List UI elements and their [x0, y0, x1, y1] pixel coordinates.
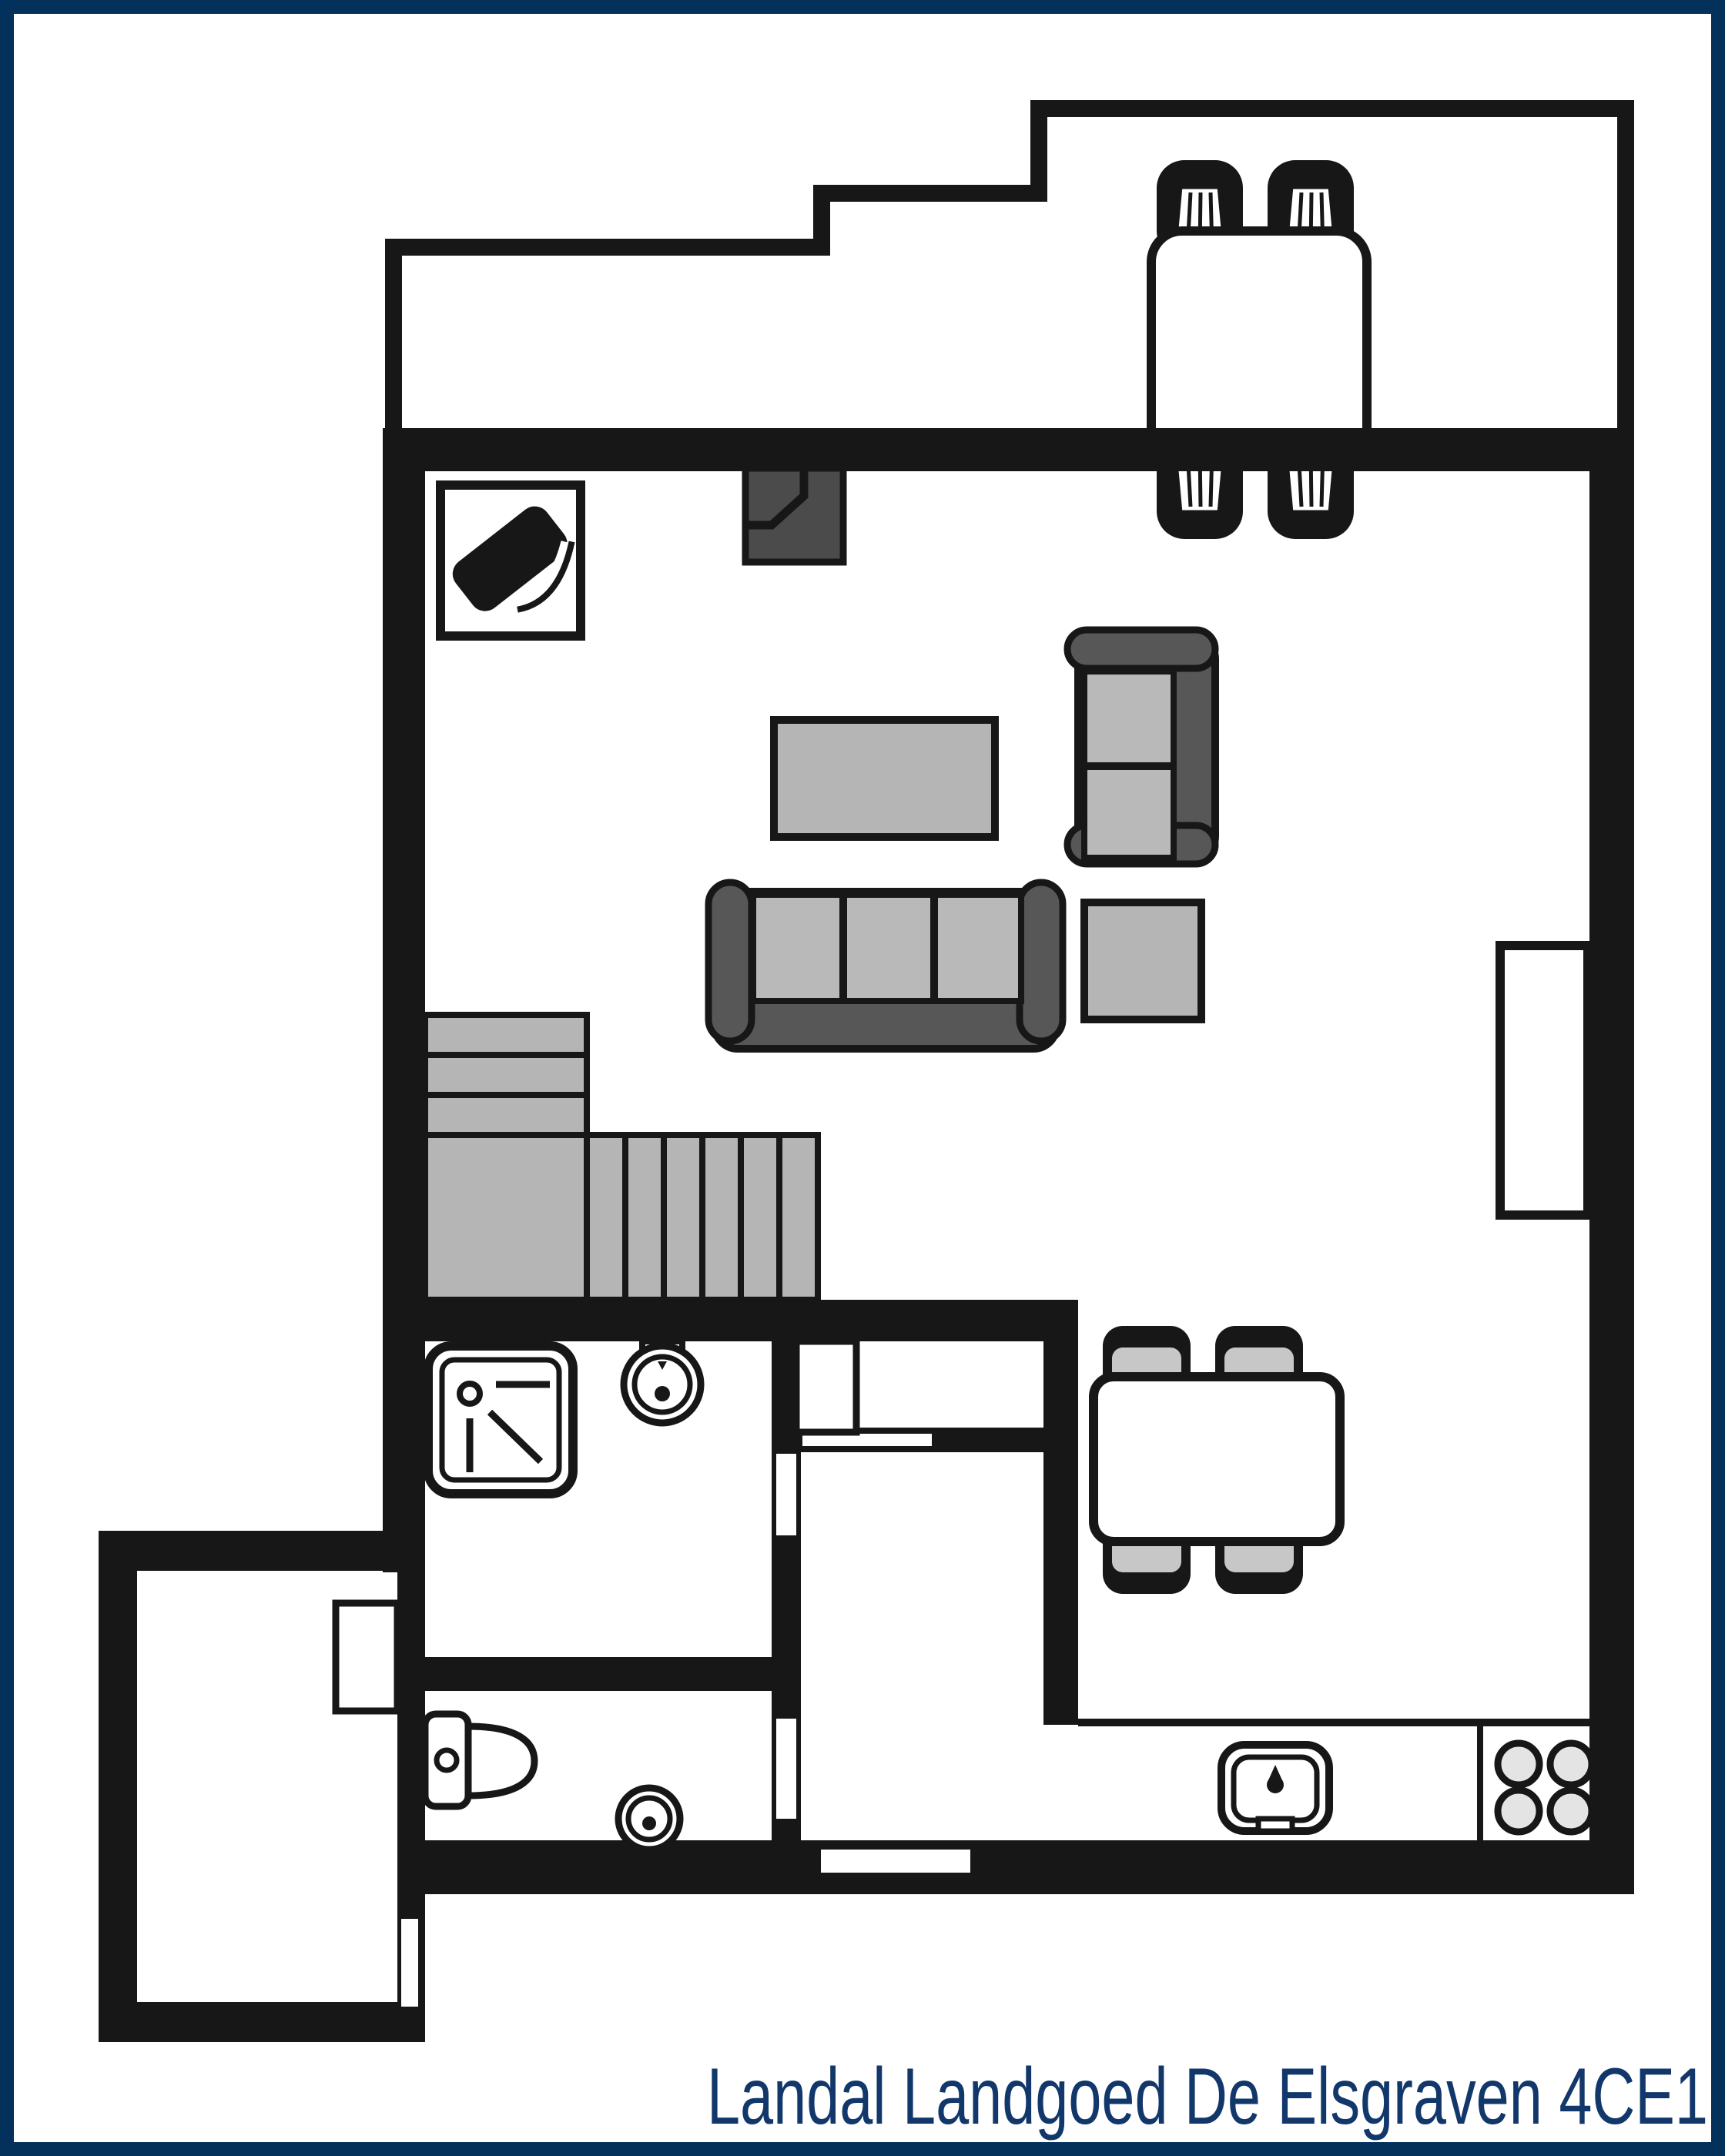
- dining-table-icon: [1094, 1377, 1340, 1542]
- sideboard-icon: [1500, 946, 1588, 1215]
- wall-left: [383, 428, 425, 1572]
- hand-basin-icon: [618, 1788, 680, 1850]
- door-opening: [776, 1719, 796, 1819]
- floorplan-canvas: Landal Landgoed De Elsgraven 4CE1: [0, 0, 1725, 2156]
- two-seat-sofa-icon: [1067, 630, 1215, 864]
- rug-icon: [774, 720, 995, 837]
- fireplace-icon: [744, 468, 843, 562]
- tv-cabinet-icon: [440, 485, 588, 636]
- cupboard-icon: [796, 1341, 856, 1432]
- side-table-icon: [1084, 902, 1201, 1019]
- wall-bottom: [425, 1840, 1634, 1894]
- outdoor-dining-table-icon: [1151, 231, 1367, 458]
- wall-shed-left: [99, 1531, 137, 2042]
- door-opening: [776, 1454, 796, 1535]
- wall-shed-top: [99, 1531, 425, 1571]
- page-background: [0, 0, 1725, 2156]
- wall-right: [1589, 428, 1634, 1894]
- door-opening: [821, 1850, 970, 1873]
- shower-icon: [428, 1346, 573, 1494]
- kitchen-sink-icon: [1221, 1745, 1329, 1831]
- wall-shed-bottom: [99, 2002, 425, 2042]
- wall-top: [383, 428, 1634, 471]
- three-seat-sofa-icon: [708, 882, 1063, 1049]
- page-title: Landal Landgoed De Elsgraven 4CE1: [707, 2052, 1708, 2141]
- cupboard-icon: [336, 1603, 397, 1711]
- washbasin-icon: [624, 1341, 701, 1423]
- wall-stairs: [383, 1300, 1078, 1341]
- wall-hall-right: [1043, 1300, 1078, 1725]
- wall-toilet-divider: [397, 1657, 801, 1691]
- door-opening: [401, 1919, 418, 2007]
